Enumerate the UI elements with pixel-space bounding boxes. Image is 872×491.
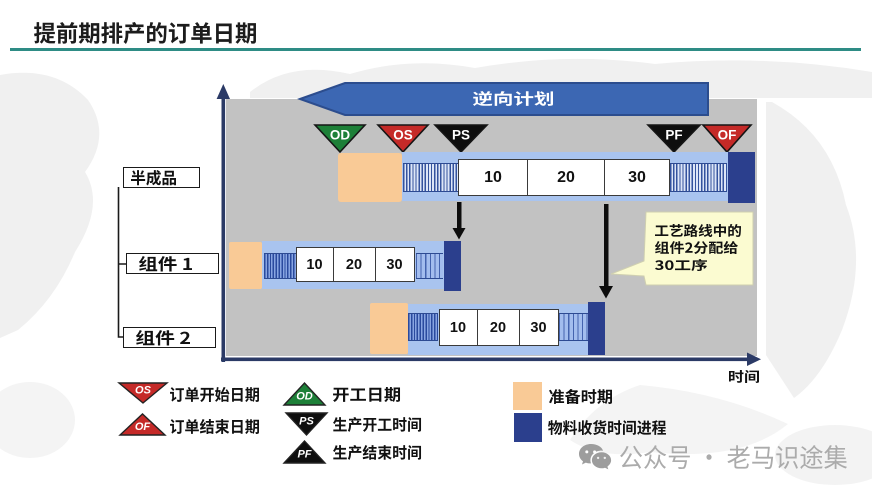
svg-text:OD: OD	[296, 391, 313, 403]
svg-text:OS: OS	[135, 384, 152, 396]
svg-text:OS: OS	[393, 128, 413, 143]
svg-text:PF: PF	[297, 449, 311, 461]
svg-text:OD: OD	[330, 128, 351, 143]
svg-text:PS: PS	[299, 416, 314, 428]
svg-text:OF: OF	[718, 128, 737, 143]
svg-text:PF: PF	[665, 128, 682, 143]
svg-text:PS: PS	[452, 128, 470, 143]
svg-text:OF: OF	[135, 421, 151, 433]
